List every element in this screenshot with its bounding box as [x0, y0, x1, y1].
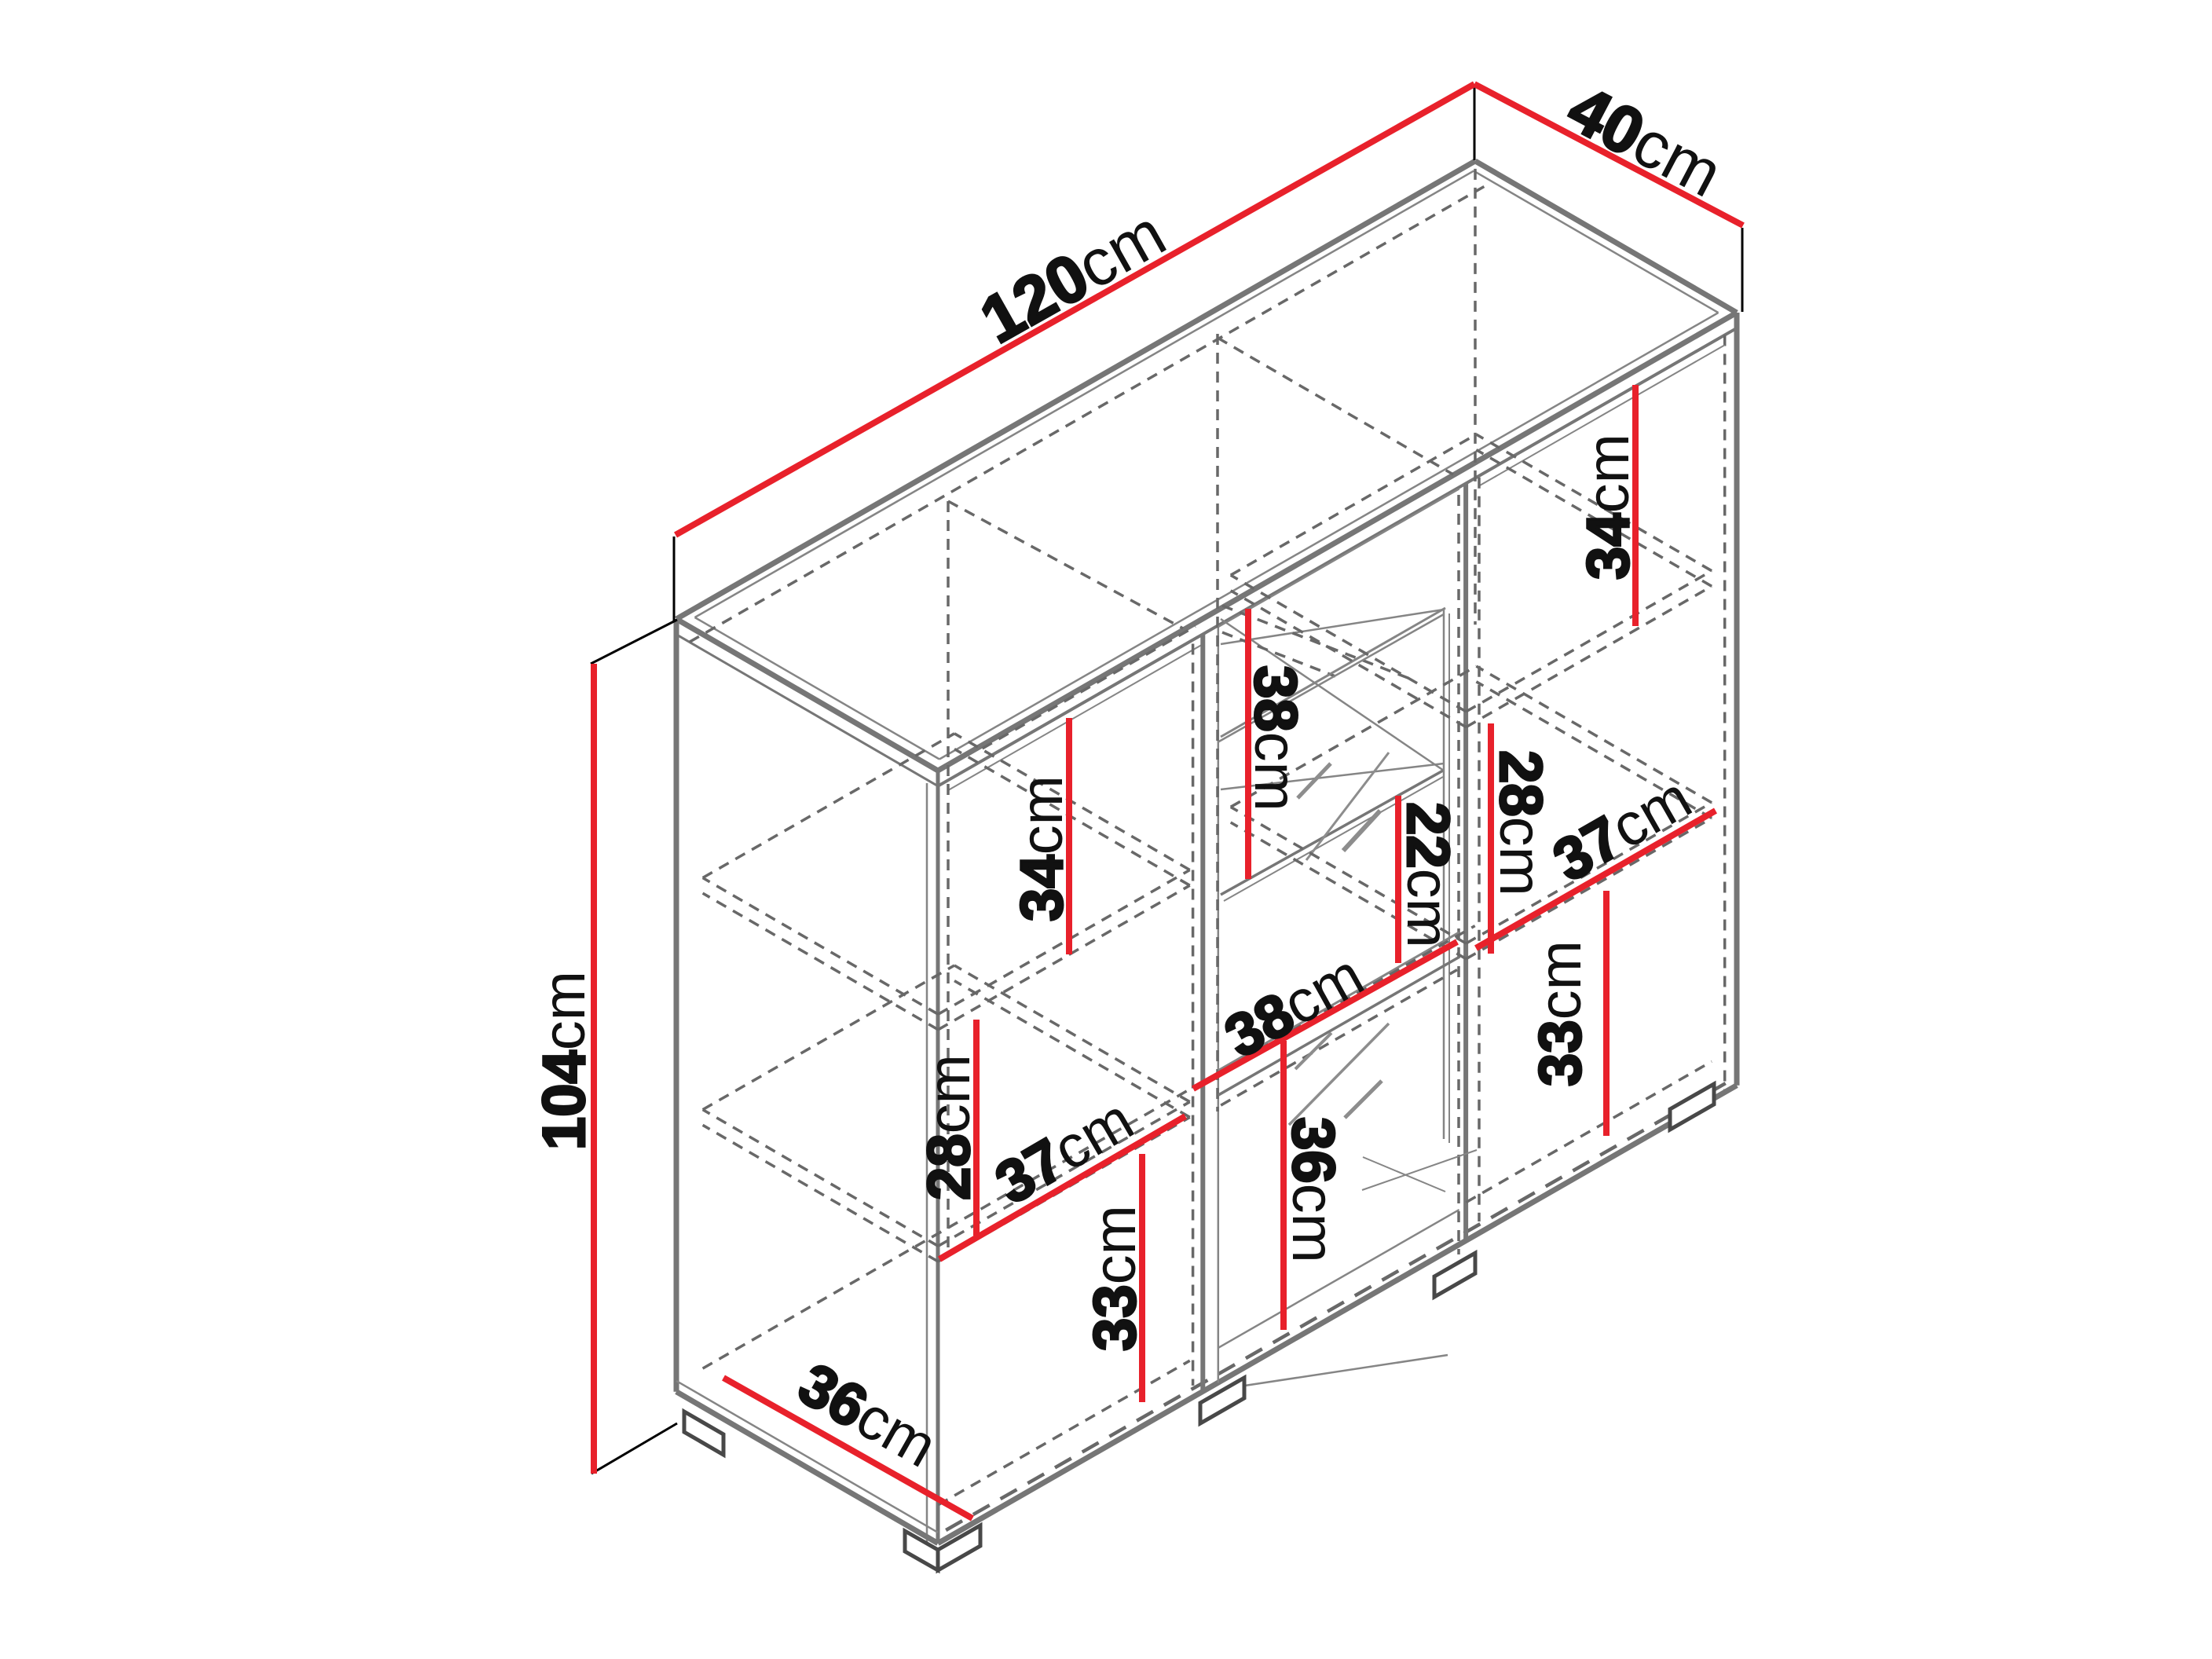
svg-text:34cm: 34cm — [1009, 775, 1075, 921]
svg-text:28cm: 28cm — [1487, 750, 1554, 896]
svg-text:38cm: 38cm — [1242, 665, 1309, 811]
svg-text:22cm: 22cm — [1394, 802, 1461, 948]
svg-text:36cm: 36cm — [1280, 1117, 1346, 1263]
svg-text:104cm: 104cm — [531, 971, 598, 1150]
svg-text:34cm: 34cm — [1575, 434, 1642, 580]
svg-text:28cm: 28cm — [916, 1054, 983, 1200]
svg-text:33cm: 33cm — [1527, 940, 1594, 1086]
svg-text:33cm: 33cm — [1082, 1205, 1148, 1351]
